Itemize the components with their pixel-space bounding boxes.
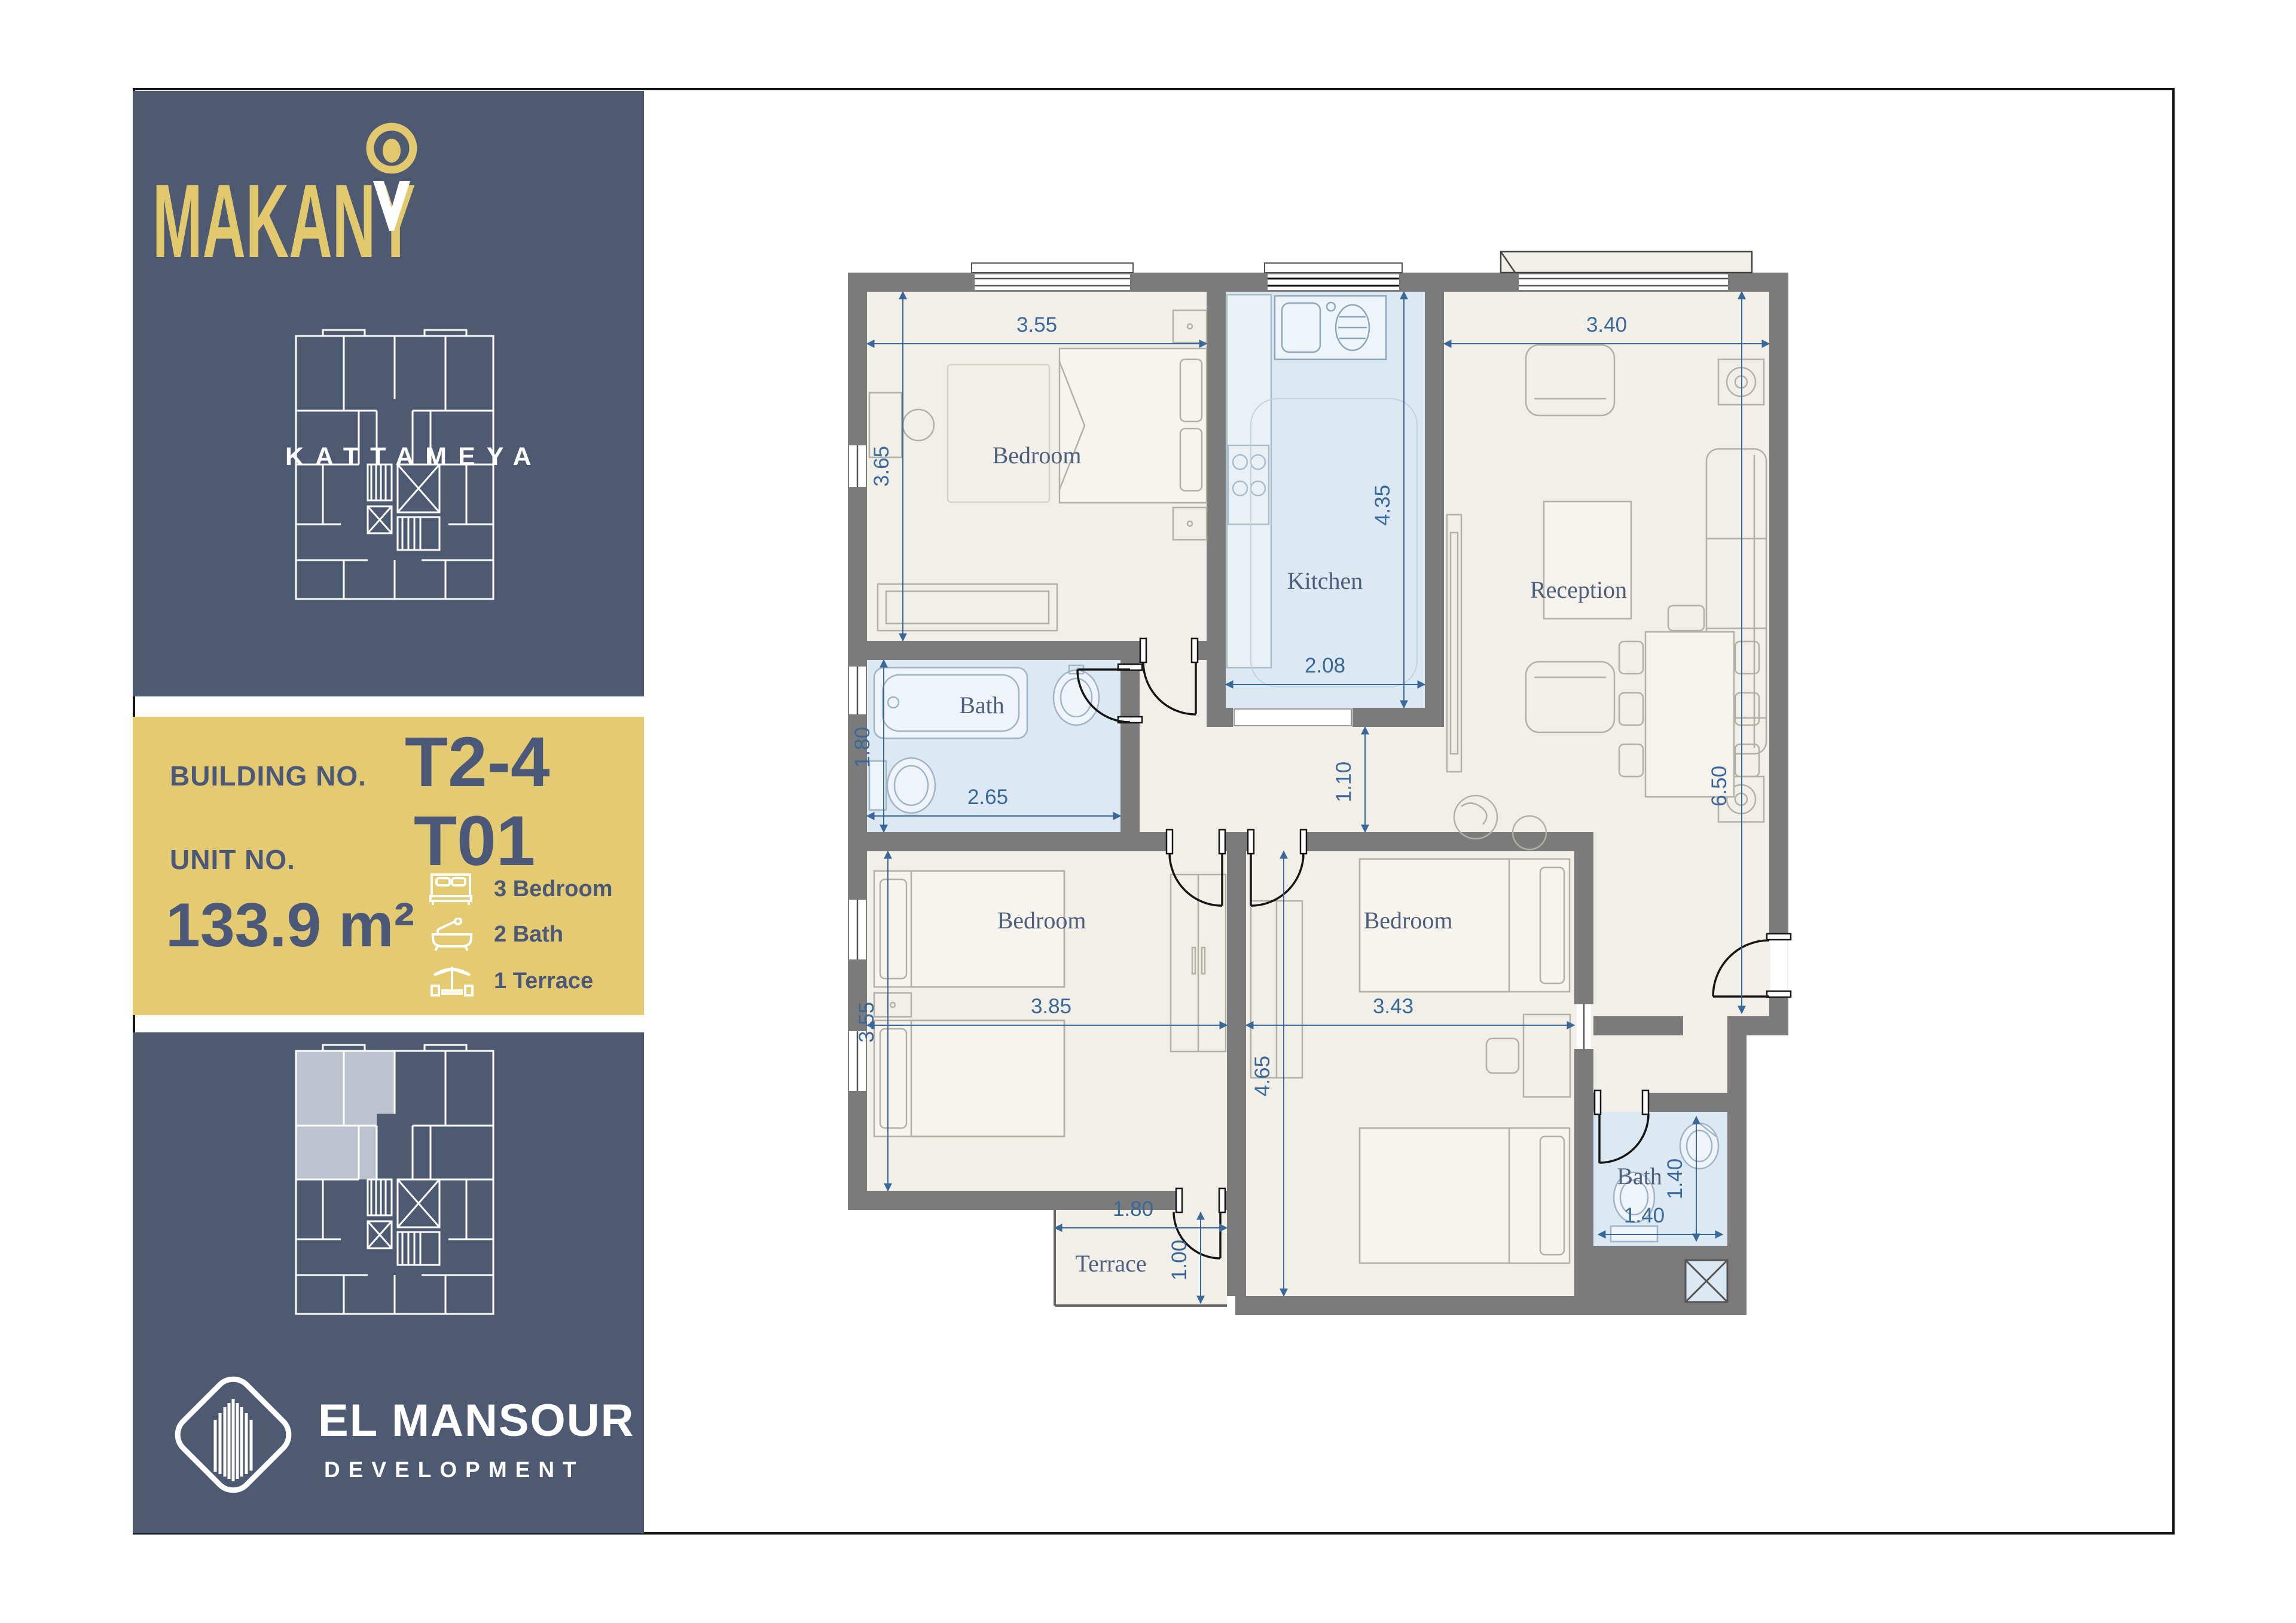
- dimension-label: 4.35: [1371, 485, 1394, 525]
- dimension-label: 1.00: [1168, 1240, 1191, 1280]
- dimension-label: 4.65: [1251, 1056, 1274, 1096]
- terrace-icon: [429, 963, 478, 999]
- feature-baths-label: 2 Bath: [494, 922, 563, 947]
- dimension-label: 1.40: [1624, 1204, 1665, 1227]
- feature-bedrooms: 3 Bedroom: [429, 872, 612, 906]
- feature-bedrooms-label: 3 Bedroom: [494, 876, 612, 902]
- unit-highlight: [296, 1051, 395, 1179]
- building-key-plan: [287, 327, 502, 608]
- unit-info-card: BUILDING NO. T2-4 UNIT NO. T01 133.9 m² …: [133, 717, 644, 1015]
- dimension-label: 1.10: [1332, 762, 1355, 802]
- room-label: Bedroom: [993, 442, 1082, 469]
- room-label: Bath: [1617, 1163, 1662, 1190]
- dimension-label: 3.65: [870, 446, 893, 487]
- room-label: Bedroom: [1364, 907, 1453, 934]
- makany-logo: MAKANY: [148, 114, 423, 287]
- feature-terrace: 1 Terrace: [429, 963, 593, 999]
- shaft: [1686, 1260, 1727, 1302]
- dimension-label: 2.08: [1305, 654, 1345, 677]
- bed-icon: [429, 872, 478, 906]
- feature-terrace-label: 1 Terrace: [494, 968, 593, 994]
- building-no-label: BUILDING NO.: [170, 760, 367, 792]
- unit-area-value: 133.9 m²: [166, 890, 414, 961]
- dimension-label: 3.40: [1586, 313, 1627, 337]
- building-no-value: T2-4: [405, 722, 550, 803]
- dimension-label: 6.50: [1708, 766, 1731, 806]
- dimension-label: 1.80: [1113, 1197, 1153, 1221]
- room-label: Kitchen: [1287, 567, 1363, 594]
- makany-logo-text: MAKANY: [152, 163, 416, 280]
- unit-no-value: T01: [414, 800, 535, 882]
- dimension-label: 3.55: [855, 1002, 878, 1043]
- floor-plan: 3.553.653.406.504.352.081.802.651.103.55…: [831, 248, 1812, 1354]
- unit-locator-key-plan: [287, 1042, 502, 1323]
- bath-icon: [429, 918, 478, 951]
- dimension-label: 1.40: [1663, 1159, 1687, 1199]
- dimension-label: 3.85: [1031, 995, 1071, 1018]
- developer-subtitle: DEVELOPMENT: [324, 1457, 585, 1483]
- dimension-label: 3.43: [1373, 995, 1413, 1018]
- developer-name: EL MANSOUR: [318, 1395, 635, 1447]
- room-label: Bedroom: [997, 907, 1086, 934]
- room-label: Terrace: [1075, 1250, 1146, 1277]
- sidebar-top-panel: MAKANY KATTAMEYA: [133, 91, 644, 696]
- el-mansour-logo-icon: [161, 1363, 305, 1506]
- dimension-label: 2.65: [967, 785, 1008, 809]
- unit-no-label: UNIT NO.: [170, 843, 295, 876]
- dimension-label: 3.55: [1016, 313, 1057, 337]
- sidebar-bottom-panel: EL MANSOUR DEVELOPMENT: [133, 1032, 644, 1533]
- room-label: Reception: [1530, 576, 1627, 603]
- feature-baths: 2 Bath: [429, 918, 563, 951]
- room-label: Bath: [959, 692, 1004, 719]
- dimension-label: 1.80: [851, 727, 874, 768]
